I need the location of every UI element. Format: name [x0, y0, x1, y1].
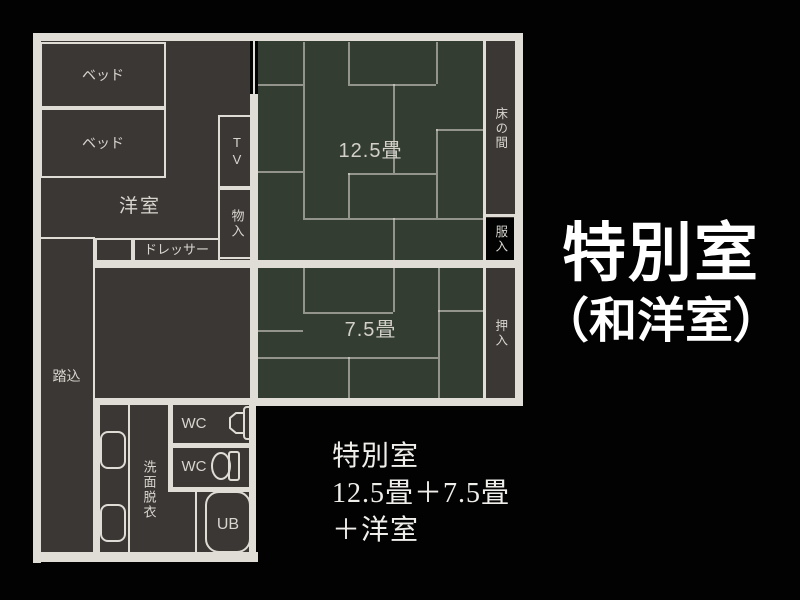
futon-closet-label: 押入: [483, 268, 517, 398]
description-line2: 12.5畳＋7.5畳: [332, 475, 572, 512]
tokonoma-label: 床の間: [483, 40, 517, 218]
tatami-12-5-label: 12.5畳: [258, 40, 483, 262]
wc-divider-2: [168, 487, 256, 492]
bath-wall-top: [93, 398, 256, 405]
entrance-label: 踏込: [40, 365, 93, 387]
tv-label: TV: [218, 115, 254, 188]
sink-divider-line: [128, 404, 130, 552]
entrance-corridor-area: [38, 238, 93, 553]
western-room-label: 洋室: [95, 194, 185, 220]
floorplan-page: ベッド ベッド 洋室 TV 物入 ドレッサー 12.5畳 床の間 服入 7.5畳…: [0, 0, 800, 600]
washroom-right-wall: [168, 403, 173, 492]
sink-1: [100, 431, 126, 469]
wall-bottom: [33, 552, 258, 562]
sink-2: [100, 504, 126, 542]
dresser-label: ドレッサー: [133, 238, 220, 262]
toilet-icon: [226, 405, 256, 441]
wall-tatami-bottom: [250, 398, 523, 406]
bath-wall-left: [93, 398, 100, 552]
description-line1: 特別室: [332, 438, 572, 475]
bath-left-line: [195, 492, 197, 552]
sliding-door-line: [253, 38, 255, 96]
description-line3: ＋洋室: [332, 512, 572, 549]
page-title-line2: （和洋室）: [525, 292, 797, 352]
bed-1-label: ベッド: [40, 42, 166, 108]
page-title: 特別室 （和洋室）: [525, 216, 797, 352]
room-description: 特別室 12.5畳＋7.5畳 ＋洋室: [332, 438, 572, 549]
bed-2-label: ベッド: [40, 108, 166, 178]
washroom-label: 洗面脱衣: [132, 435, 164, 545]
entrance-top-line: [38, 237, 95, 239]
small-cabinet-box: [95, 238, 133, 262]
wc1-label: WC: [174, 407, 214, 441]
wc2-label: WC: [174, 450, 214, 484]
clothes-closet-label: 服入: [483, 214, 517, 264]
storage-label: 物入: [218, 188, 254, 259]
unit-bath-label: UB: [205, 505, 251, 545]
page-title-line1: 特別室: [525, 216, 797, 292]
tatami-7-5-label: 7.5畳: [258, 268, 483, 393]
toilet-icon: [210, 448, 240, 484]
